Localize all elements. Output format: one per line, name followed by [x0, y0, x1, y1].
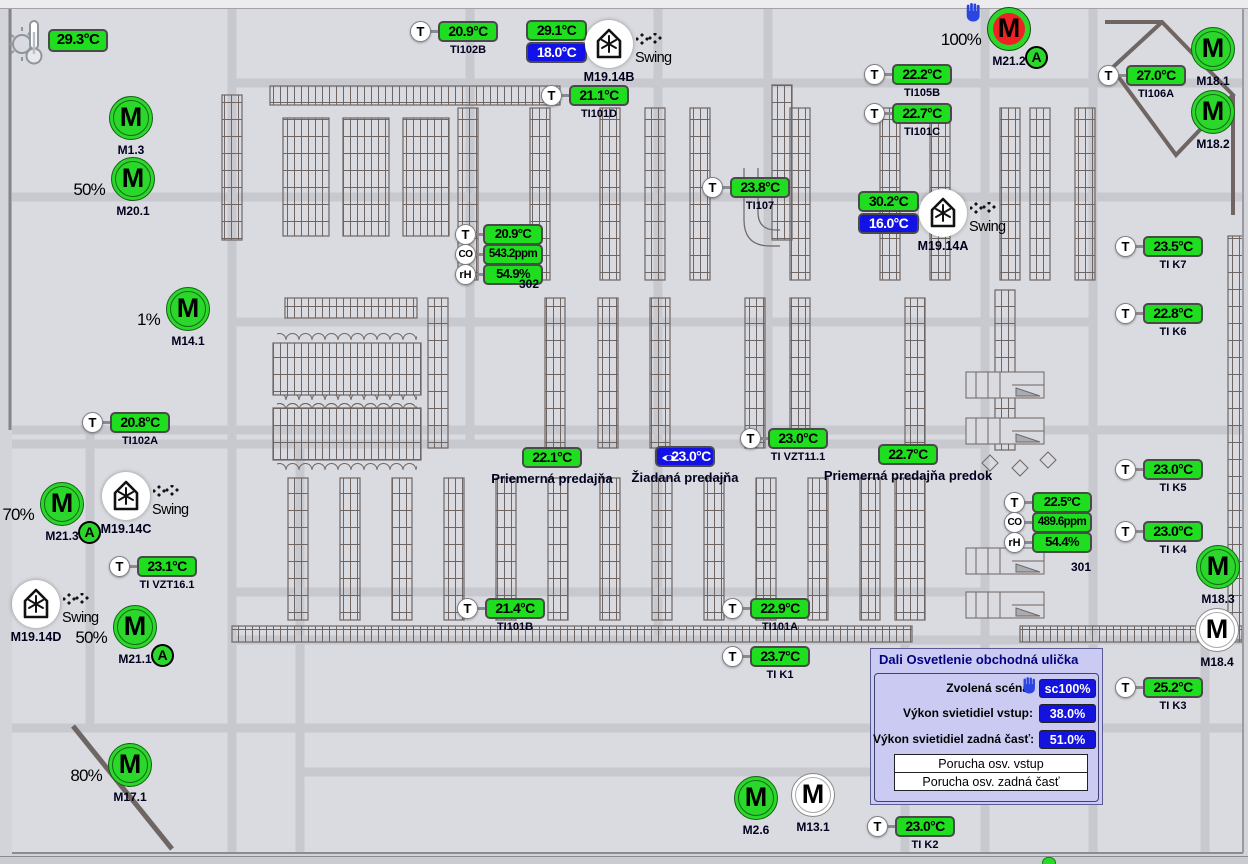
temperature-sensor[interactable]: T 22.2°C TI105B [892, 64, 952, 85]
motor-tag: M21.2 [992, 54, 1025, 68]
temperature-icon: T [1115, 236, 1136, 257]
hvac-unit-circle [919, 189, 967, 237]
temperature-value: 22.7°C [892, 103, 952, 124]
motor-tag: M18.1 [1196, 74, 1229, 88]
temperature-icon: T [1004, 492, 1025, 513]
cluster-id: 301 [1071, 560, 1091, 574]
motor-speed-percent: 50% [53, 628, 107, 648]
temperature-value: 23.8°C [730, 177, 790, 198]
scene-label: Zvolená scéna: [873, 681, 1033, 695]
swing-arrows-icon [636, 33, 663, 49]
cluster-humidity-value: 54.4% [1032, 532, 1092, 553]
sensor-tag: TI101B [497, 621, 533, 633]
swing-label: Swing [969, 219, 1006, 235]
hand-mode-icon [965, 3, 982, 22]
temperature-value: 22.8°C [1143, 303, 1203, 324]
outdoor-temperature-display: 29.3°C [48, 29, 108, 52]
temperature-value: 23.0°C [895, 816, 955, 837]
motor-icon: M [40, 482, 84, 526]
cluster-humidity-row: rH 54.4% [1032, 532, 1092, 553]
temperature-icon: T [410, 21, 431, 42]
hvac-unit-tag: M19.14C [101, 522, 152, 536]
temperature-sensor[interactable]: T 23.5°C TI K7 [1143, 236, 1203, 257]
temperature-sensor[interactable]: T 20.8°C TI102A [110, 412, 170, 433]
average-value: 22.7°C [888, 446, 927, 462]
motor-icon: M [1196, 545, 1240, 589]
average-label: Priemerná predajňa [491, 471, 612, 486]
humidity-icon: rH [1004, 532, 1025, 553]
motor-tag: M2.6 [743, 823, 770, 837]
setpoint-temperature-value: 16.0°C [858, 213, 919, 234]
cooling-house-snowflake-icon [919, 189, 967, 237]
cluster-temperature-value: 20.9°C [483, 224, 543, 245]
cluster-temperature-row: T 22.5°C [1032, 492, 1092, 513]
temperature-value: 23.5°C [1143, 236, 1203, 257]
power-front-label: Výkon svietidiel vstup: [873, 706, 1033, 720]
cluster-temperature-value: 22.5°C [1032, 492, 1092, 513]
average-value: 23.0°C [671, 448, 710, 464]
temperature-value: 23.7°C [750, 646, 810, 667]
motor-icon: M [791, 773, 835, 817]
average-label: Priemerná predajňa predok [824, 468, 992, 483]
cluster-co2-row: CO 543.2ppm [483, 244, 543, 265]
motor-icon: M [109, 96, 153, 140]
temperature-icon: T [541, 85, 562, 106]
temperature-value: 23.1°C [137, 556, 197, 577]
sensor-tag: TI105B [904, 87, 940, 99]
motor-icon: M [1191, 90, 1235, 134]
temperature-sensor[interactable]: T 21.1°C TI101D [569, 85, 629, 106]
cooling-house-snowflake-icon [12, 580, 60, 628]
temperature-value: 22.9°C [750, 598, 810, 619]
sensor-tag: TI101C [904, 126, 940, 138]
cluster-temperature-row: T 20.9°C [483, 224, 543, 245]
temperature-value: 20.9°C [438, 21, 498, 42]
power-back-label: Výkon svietidiel zadná časť: [873, 732, 1033, 746]
temperature-value: 25.2°C [1143, 677, 1203, 698]
motor-icon: M [166, 287, 210, 331]
cooling-house-snowflake-icon [585, 20, 633, 68]
temperature-icon: T [1115, 459, 1136, 480]
temperature-sensor[interactable]: T 23.0°C TI K2 [895, 816, 955, 837]
temperature-sensor[interactable]: T 27.0°C TI106A [1126, 65, 1186, 86]
auto-mode-badge: A [1025, 46, 1048, 69]
motor-tag: M21.1 [118, 652, 151, 666]
auto-mode-badge: A [78, 521, 101, 544]
alarm-back-button[interactable]: Porucha osv. zadná časť [894, 772, 1088, 791]
sensor-tag: TI VZT11.1 [771, 451, 825, 463]
motor-tag: M13.1 [796, 820, 829, 834]
motor-tag: M18.2 [1196, 137, 1229, 151]
co2-icon: CO [1004, 512, 1025, 533]
sensor-tag: TI107 [746, 200, 774, 212]
average-value-box: 22.1°C [522, 447, 582, 468]
temperature-icon: T [1115, 303, 1136, 324]
temperature-icon: T [82, 412, 103, 433]
window-top-strip [0, 0, 1248, 9]
scada-store-floorplan-screen: 29.3°C T 20.9°C TI102B T 21.1°C TI101D T… [0, 0, 1248, 864]
temperature-sensor[interactable]: T 22.9°C TI101A [750, 598, 810, 619]
sensor-tag: TI106A [1138, 88, 1174, 100]
temperature-icon: T [109, 556, 130, 577]
window-bottom-strip [0, 856, 1248, 864]
temperature-sensor[interactable]: T 20.9°C TI102B [438, 21, 498, 42]
sensor-tag: TI102A [122, 435, 158, 447]
average-value-box: 23.0°C [655, 446, 715, 467]
swing-label: Swing [62, 610, 99, 626]
outdoor-temperature-widget[interactable]: 29.3°C [8, 18, 48, 71]
temperature-icon: T [864, 103, 885, 124]
cluster-co2-row: CO 489.6ppm [1032, 512, 1092, 533]
dali-panel-title: Dali Osvetlenie obchodná ulička [879, 652, 1078, 667]
swing-arrows-icon [153, 485, 180, 501]
motor-tag: M14.1 [171, 334, 204, 348]
alarm-front-button[interactable]: Porucha osv. vstup [894, 754, 1088, 773]
sensor-tag: TI102B [450, 44, 486, 56]
hvac-unit-circle [585, 20, 633, 68]
temperature-icon: T [455, 224, 476, 245]
motor-tag: M18.4 [1200, 655, 1233, 669]
cluster-co2-value: 543.2ppm [483, 244, 543, 265]
temperature-icon: T [867, 816, 888, 837]
temperature-sensor[interactable]: T 22.8°C TI K6 [1143, 303, 1203, 324]
motor-tag: M20.1 [116, 204, 149, 218]
temperature-sensor[interactable]: T 22.7°C TI101C [892, 103, 952, 124]
motor-speed-percent: 50% [51, 180, 105, 200]
temperature-icon: T [702, 177, 723, 198]
partial-indicator [1042, 857, 1056, 864]
cluster-id: 302 [519, 277, 539, 291]
motor-icon: M [108, 743, 152, 787]
hvac-unit-circle [102, 472, 150, 520]
sensor-tag: TI101D [581, 108, 617, 120]
temperature-icon: T [1098, 65, 1119, 86]
motor-tag: M1.3 [118, 143, 145, 157]
temperature-icon: T [1115, 677, 1136, 698]
motor-icon: M [1195, 608, 1239, 652]
hvac-unit-tag: M19.14B [584, 70, 635, 84]
actual-temperature-value: 29.1°C [526, 20, 587, 41]
actual-temperature-value: 30.2°C [858, 191, 919, 212]
power-front-value[interactable]: 38.0% [1039, 704, 1096, 723]
sensor-tag: TI K7 [1160, 259, 1187, 271]
motor-tag: M17.1 [113, 790, 146, 804]
temperature-sensor[interactable]: T 23.0°C TI VZT11.1 [768, 428, 828, 449]
temperature-sensor[interactable]: T 23.0°C TI K5 [1143, 459, 1203, 480]
temperature-icon: T [864, 64, 885, 85]
swing-arrows-icon [970, 202, 997, 218]
humidity-icon: rH [455, 264, 476, 285]
temperature-sensor[interactable]: T 25.2°C TI K3 [1143, 677, 1203, 698]
sensor-tag: TI K1 [767, 669, 794, 681]
power-back-value[interactable]: 51.0% [1039, 730, 1096, 749]
sensor-tag: TI101A [762, 621, 798, 633]
setpoint-temperature-value: 18.0°C [526, 42, 587, 63]
temperature-sensor[interactable]: T 23.1°C TI VZT16.1 [137, 556, 197, 577]
sensor-tag: TI K6 [1160, 326, 1187, 338]
cluster-co2-value: 489.6ppm [1032, 512, 1092, 533]
temperature-value: 23.0°C [1143, 459, 1203, 480]
temperature-value: 21.1°C [569, 85, 629, 106]
temperature-icon: T [1115, 521, 1136, 542]
auto-mode-badge: A [151, 644, 174, 667]
eye-icon [661, 452, 677, 464]
motor-icon: M [1191, 27, 1235, 71]
sensor-tag: TI K3 [1160, 700, 1187, 712]
swing-arrows-icon [63, 593, 90, 609]
swing-label: Swing [152, 502, 189, 518]
motor-tag: M21.3 [45, 529, 78, 543]
sensor-tag: TI K4 [1160, 544, 1187, 556]
temperature-value: 23.0°C [1143, 521, 1203, 542]
temperature-value: 27.0°C [1126, 65, 1186, 86]
motor-speed-percent: 80% [48, 766, 102, 786]
temperature-icon: T [457, 598, 478, 619]
motor-icon: M [987, 7, 1031, 51]
average-value: 22.1°C [532, 449, 571, 465]
motor-speed-percent: 70% [0, 505, 34, 525]
dali-lighting-panel: Dali Osvetlenie obchodná ulička Zvolená … [870, 648, 1103, 805]
average-value-box: 22.7°C [878, 444, 938, 465]
average-label: Žiadaná predajňa [632, 470, 739, 485]
hvac-unit-tag: M19.14A [918, 239, 969, 253]
swing-label: Swing [635, 50, 672, 66]
temperature-value: 23.0°C [768, 428, 828, 449]
sensor-tag: TI VZT16.1 [139, 579, 194, 591]
motor-icon: M [734, 776, 778, 820]
temperature-sensor[interactable]: T 23.7°C TI K1 [750, 646, 810, 667]
co2-icon: CO [455, 244, 476, 265]
motor-speed-percent: 1% [106, 310, 160, 330]
sensor-tag: TI K2 [912, 839, 939, 851]
scene-value[interactable]: sc100% [1039, 679, 1096, 698]
temperature-value: 22.2°C [892, 64, 952, 85]
motor-speed-percent: 100% [927, 30, 981, 50]
temperature-sensor[interactable]: T 21.4°C TI101B [485, 598, 545, 619]
hand-mode-icon [1022, 677, 1037, 694]
cooling-house-snowflake-icon [102, 472, 150, 520]
hvac-unit-circle [12, 580, 60, 628]
motor-tag: M18.3 [1201, 592, 1234, 606]
motor-icon: M [111, 157, 155, 201]
temperature-sensor[interactable]: T 23.8°C TI107 [730, 177, 790, 198]
temperature-icon: T [722, 598, 743, 619]
temperature-icon: T [740, 428, 761, 449]
motor-icon: M [113, 605, 157, 649]
temperature-value: 21.4°C [485, 598, 545, 619]
temperature-value: 20.8°C [110, 412, 170, 433]
temperature-icon: T [722, 646, 743, 667]
temperature-sensor[interactable]: T 23.0°C TI K4 [1143, 521, 1203, 542]
outdoor-thermometer-sun-icon [8, 18, 48, 66]
sensor-tag: TI K5 [1160, 482, 1187, 494]
